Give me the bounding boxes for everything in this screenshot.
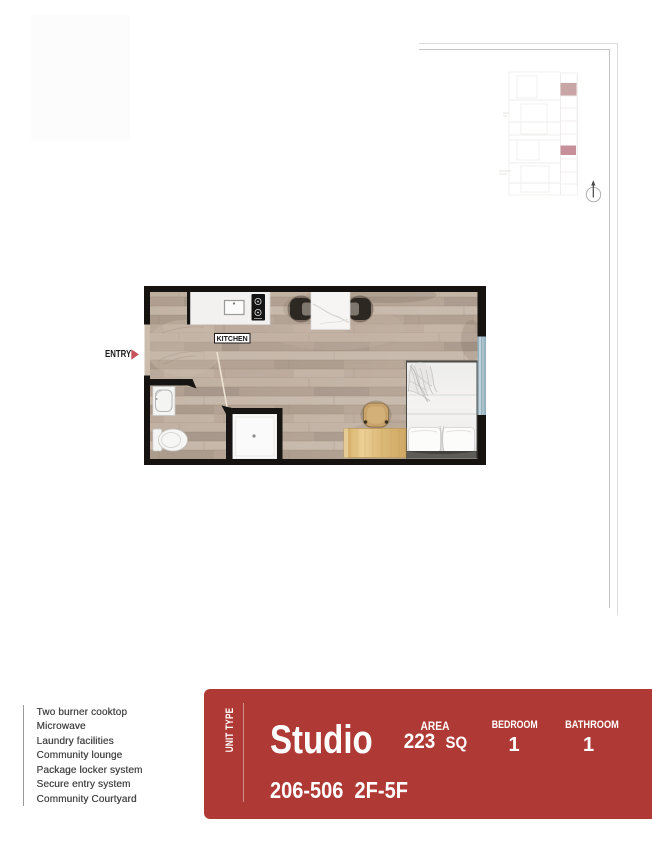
svg-text:KITCHEN: KITCHEN bbox=[217, 336, 248, 343]
